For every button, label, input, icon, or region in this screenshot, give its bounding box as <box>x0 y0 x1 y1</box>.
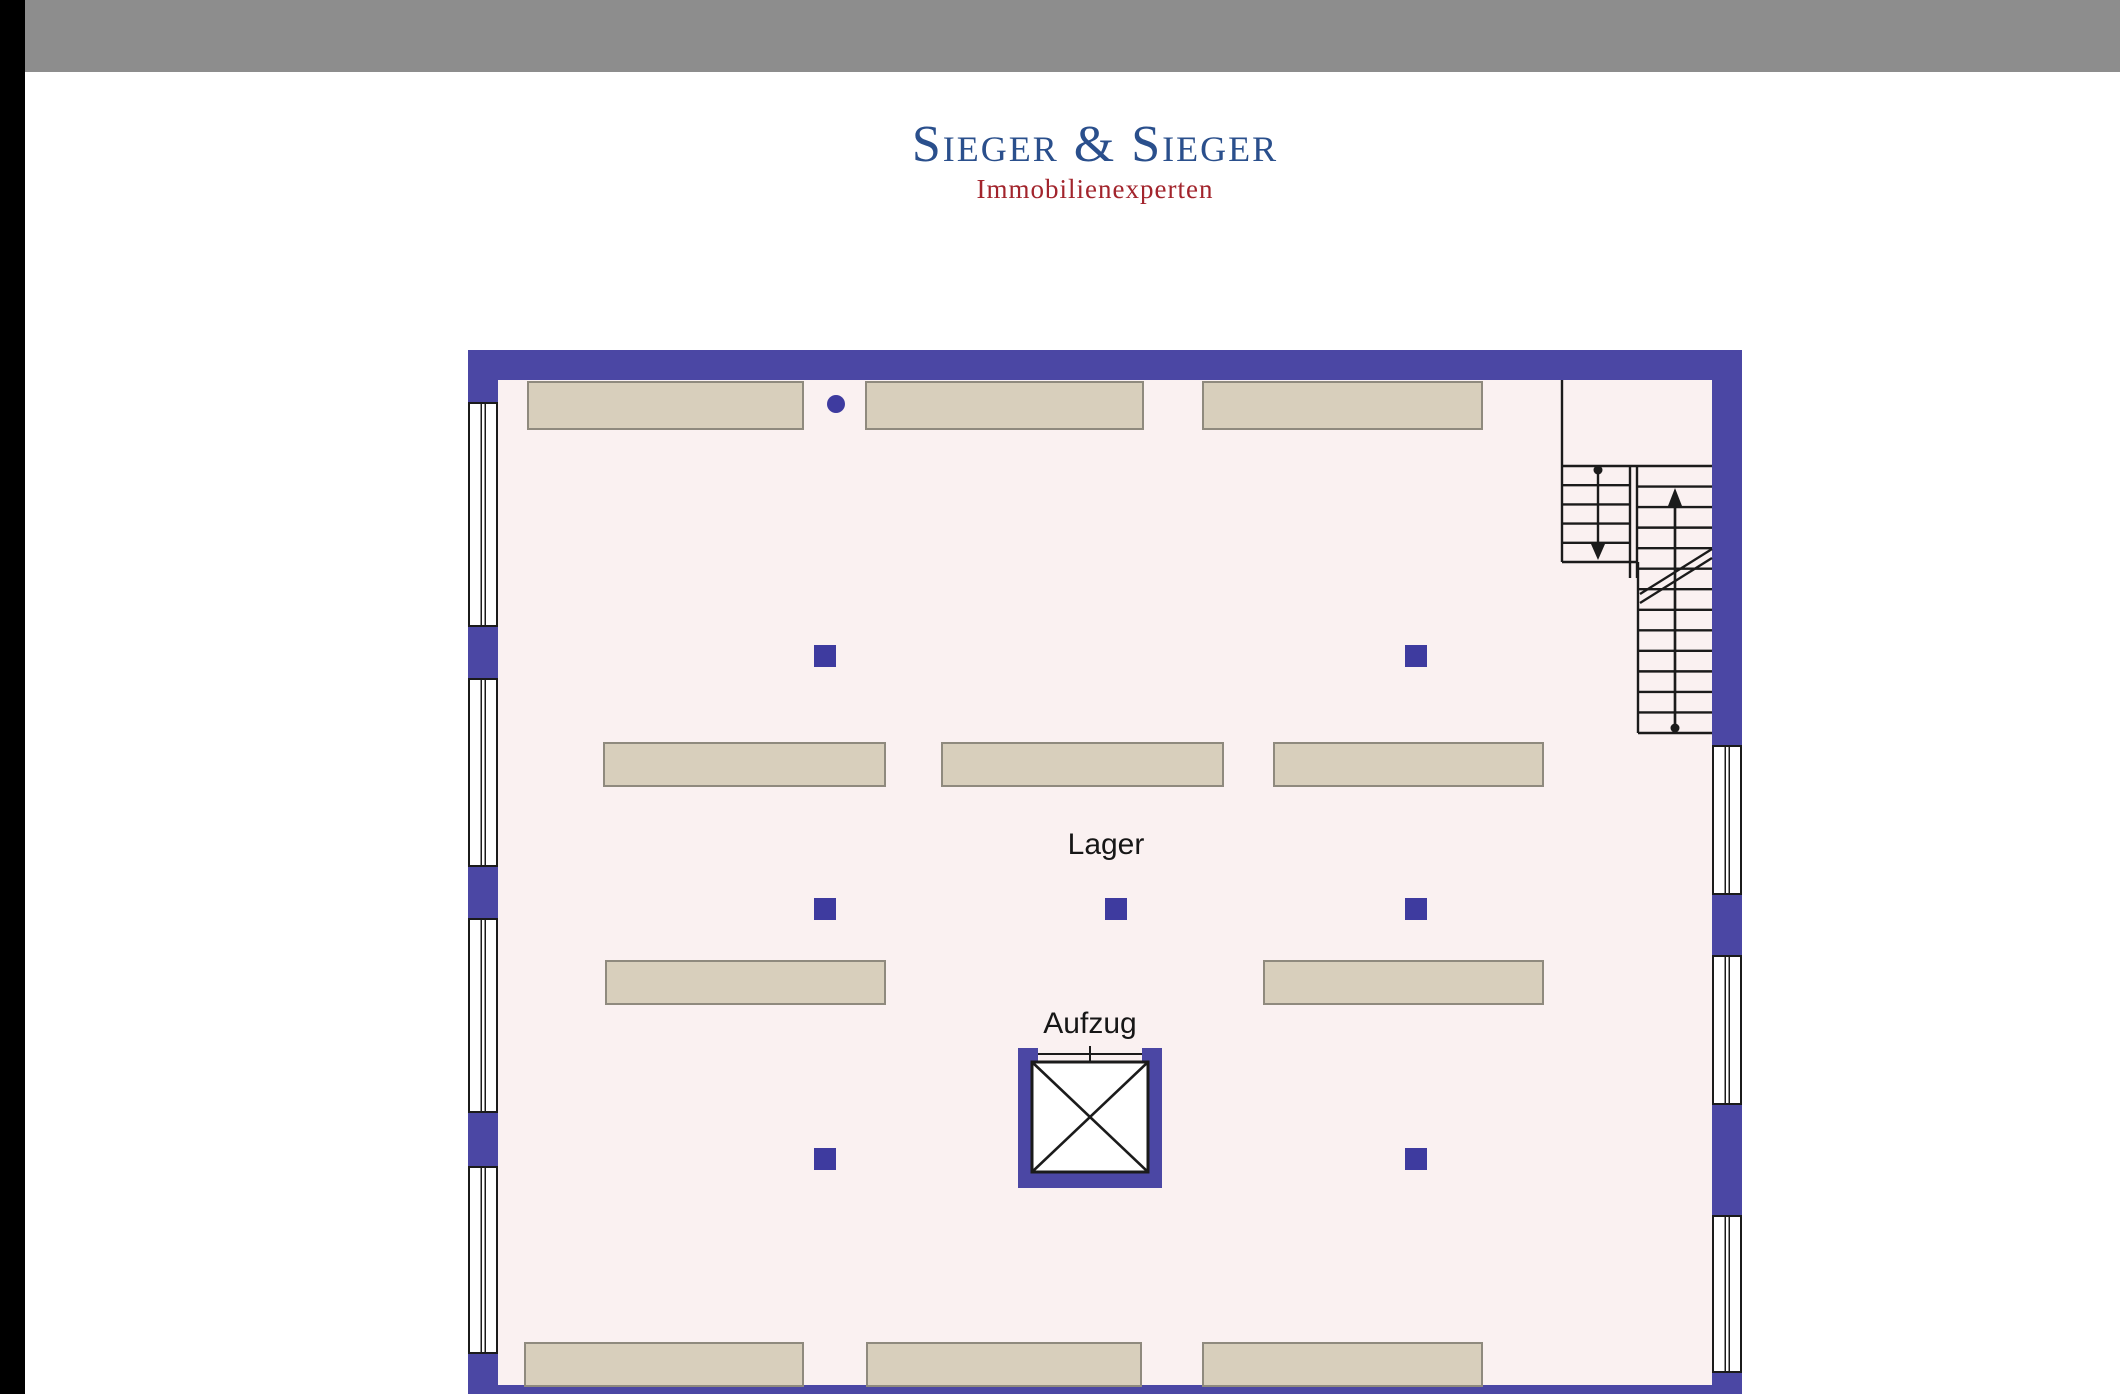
shelf-rect <box>865 381 1144 430</box>
shelf-rect <box>524 1342 804 1387</box>
wall-segment <box>468 350 1742 380</box>
screen-edge-strip <box>0 0 25 1394</box>
wall-segment <box>1712 380 1742 745</box>
shelf-rect <box>527 381 804 430</box>
shelf-rect <box>941 742 1224 787</box>
wall-segment <box>468 867 498 918</box>
column-marker <box>1405 1148 1427 1170</box>
viewer-toolbar <box>25 0 2120 72</box>
wall-segment <box>1142 1048 1162 1188</box>
column-marker <box>814 645 836 667</box>
shelf-rect <box>1202 1342 1483 1387</box>
column-marker <box>1105 898 1127 920</box>
column-marker <box>814 1148 836 1170</box>
wall-segment <box>1018 1048 1038 1188</box>
shelf-rect <box>1202 381 1483 430</box>
wall-segment <box>468 1113 498 1166</box>
shelf-rect <box>1263 960 1544 1005</box>
wall-segment <box>468 380 498 402</box>
wall-segment <box>468 627 498 678</box>
shelf-rect <box>1273 742 1544 787</box>
column-marker <box>1405 898 1427 920</box>
shelf-rect <box>605 960 886 1005</box>
wall-segment <box>1018 1168 1162 1188</box>
window-symbol <box>1712 955 1742 1105</box>
wall-segment <box>1712 1105 1742 1215</box>
logo-name: Sieger & Sieger <box>845 118 1345 172</box>
logo-tagline: Immobilienexperten <box>845 174 1345 204</box>
window-symbol <box>1712 1215 1742 1373</box>
window-symbol <box>468 678 498 867</box>
logo: Sieger & Sieger Immobilienexperten <box>845 118 1345 204</box>
window-symbol <box>468 1166 498 1354</box>
page: Sieger & Sieger Immobilienexperten Lager… <box>0 0 2120 1394</box>
window-symbol <box>468 918 498 1113</box>
window-symbol <box>1712 745 1742 895</box>
room-label-aufzug: Aufzug <box>1043 1007 1136 1041</box>
window-symbol <box>468 402 498 627</box>
shelf-rect <box>603 742 886 787</box>
floor-area <box>496 378 1716 1394</box>
column-dot <box>827 395 845 413</box>
column-marker <box>814 898 836 920</box>
shelf-rect <box>866 1342 1142 1387</box>
room-label-lager: Lager <box>1068 828 1145 862</box>
wall-segment <box>1712 895 1742 955</box>
column-marker <box>1405 645 1427 667</box>
